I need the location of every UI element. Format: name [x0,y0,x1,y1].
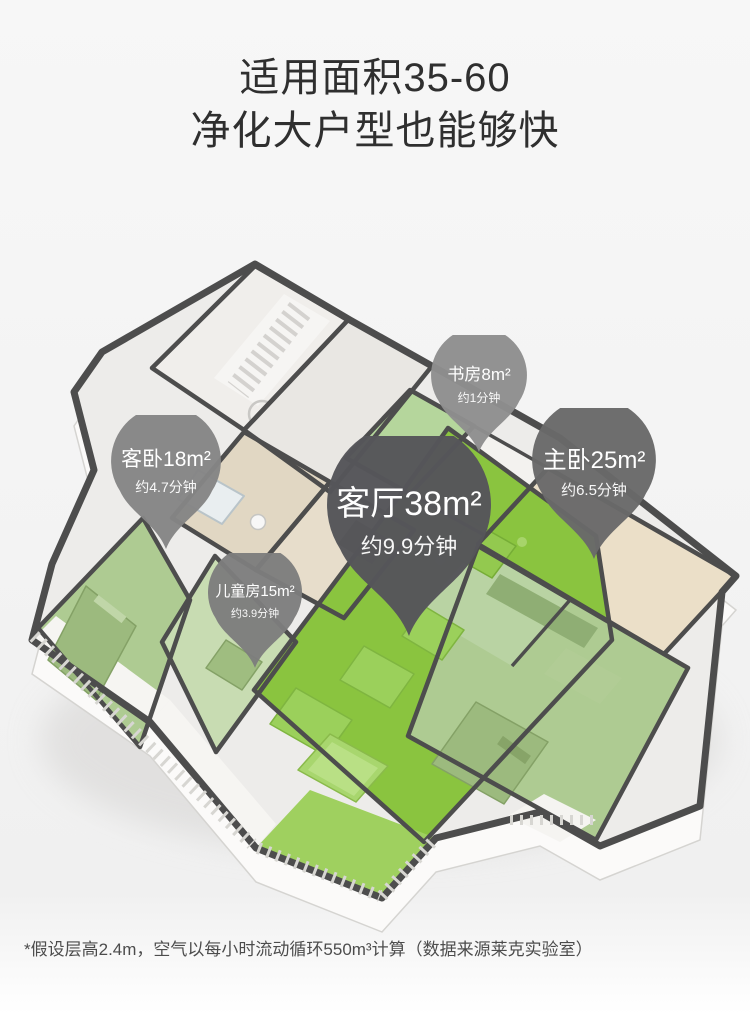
footnote: *假设层高2.4m，空气以每小时流动循环550m³计算（数据来源莱克实验室） [24,938,734,962]
pin-master-time: 约6.5分钟 [561,479,627,500]
pin-children-room-label: 儿童房15m² [215,580,294,601]
pin-guest-time: 约4.7分钟 [135,477,196,497]
pin-guest-bedroom: 客卧18m² 约4.7分钟 [111,415,221,549]
pin-study-time: 约1分钟 [458,389,501,406]
dining-chair [517,537,527,547]
pin-children-room: 儿童房15m² 约3.9分钟 [208,553,302,668]
pin-children-time: 约3.9分钟 [231,605,279,621]
pin-master-room: 主卧25m² [543,440,646,475]
pin-living-room-label: 客厅38m² [336,476,481,525]
pin-study: 书房8m² 约1分钟 [431,335,527,452]
toilet [251,515,266,530]
pin-study-room: 书房8m² [447,360,510,385]
pin-guest-room: 客卧18m² [121,443,211,473]
promo-page: 适用面积35-60 净化大户型也能够快 [0,0,750,1014]
pin-living-time: 约9.9分钟 [361,529,458,561]
pin-master-bedroom: 主卧25m² 约6.5分钟 [532,408,656,559]
pin-living-room: 客厅38m² 约9.9分钟 [327,436,491,636]
